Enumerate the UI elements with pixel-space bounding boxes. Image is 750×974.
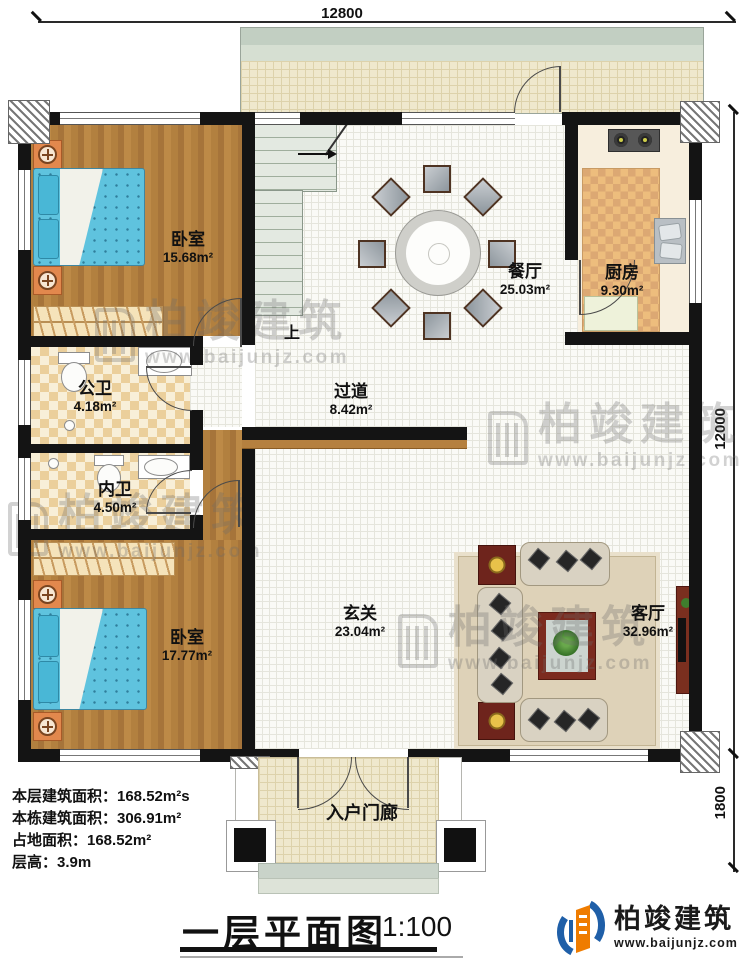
window — [510, 749, 648, 762]
lamp-icon — [489, 557, 506, 574]
room-label-hallway: 过道 8.42m² — [330, 381, 373, 419]
room-label-foyer: 玄关 23.04m² — [335, 603, 385, 641]
wall-segment — [18, 749, 60, 762]
door-leaf — [238, 480, 240, 527]
window — [255, 112, 300, 125]
room-name: 卧室 — [163, 229, 213, 250]
hatched-pad — [8, 100, 50, 144]
kitchen-sink — [654, 218, 686, 264]
pillow — [38, 219, 59, 259]
balcony-floor — [241, 61, 703, 113]
sofa-pillow — [528, 708, 551, 731]
scale-label: 1:100 — [382, 911, 452, 943]
sink-basin — [659, 242, 683, 260]
window — [18, 360, 31, 425]
lamp-icon — [38, 717, 57, 736]
pillow — [38, 175, 59, 215]
room-name: 入户门廊 — [326, 802, 398, 825]
half-wall-wood-cap — [242, 440, 467, 449]
balcony-band — [241, 28, 703, 45]
dimension-line-top — [38, 21, 736, 23]
table-center — [428, 243, 450, 265]
dining-chair — [423, 165, 451, 193]
end-table — [478, 702, 515, 740]
end-table — [478, 545, 516, 585]
nightstand — [33, 140, 62, 169]
wall-segment — [18, 444, 190, 453]
wall-segment — [300, 112, 402, 125]
brand-logo: 柏竣建筑 www.baijunjz.com — [556, 900, 738, 956]
wall-segment — [565, 332, 702, 345]
room-label-porch: 入户门廊 — [326, 802, 398, 825]
info-line: 本栋建筑面积：306.91m² — [12, 808, 190, 830]
dining-chair — [358, 240, 386, 268]
burner-flame-icon — [619, 138, 623, 142]
stove — [608, 129, 660, 152]
wall-segment — [689, 303, 702, 762]
watermark-site: www.baijunjz.com — [538, 450, 742, 472]
door-leaf — [579, 260, 581, 315]
dining-chair — [423, 312, 451, 340]
nightstand — [33, 712, 62, 741]
porch-step — [258, 878, 439, 894]
balcony-band — [241, 45, 703, 61]
bed — [33, 608, 147, 710]
watermark-logo-icon — [488, 411, 528, 465]
room-area: 9.30m² — [601, 283, 644, 300]
info-line: 占地面积：168.52m² — [12, 830, 190, 852]
title-underline — [180, 947, 437, 952]
blanket — [60, 609, 103, 709]
window — [18, 170, 31, 250]
window — [18, 600, 31, 700]
room-name: 内卫 — [94, 479, 137, 500]
dimension-top-value: 12800 — [310, 5, 374, 22]
wall-segment — [565, 112, 578, 260]
room-name: 餐厅 — [500, 261, 550, 282]
floor-drain — [64, 420, 75, 431]
door-leaf — [146, 512, 191, 514]
watermark-logo-icon — [398, 614, 438, 668]
wall-segment — [242, 427, 255, 749]
watermark-text: 柏竣建筑 — [538, 403, 742, 447]
dining-table — [395, 210, 481, 296]
pillow — [38, 661, 59, 703]
room-area: 4.18m² — [74, 399, 117, 416]
room-name: 上 — [284, 324, 300, 344]
room-label-living: 客厅 32.96m² — [623, 603, 673, 641]
room-name: 公卫 — [74, 378, 117, 399]
watermark: 柏竣建筑 www.baijunjz.com — [488, 403, 742, 472]
lamp-icon — [38, 271, 57, 290]
door-leaf — [297, 757, 299, 808]
brand-name: 柏竣建筑 — [614, 906, 738, 933]
wall-segment — [18, 529, 190, 540]
info-line: 层高：3.9m — [12, 852, 190, 874]
watermark-site: www.baijunjz.com — [448, 653, 652, 675]
watermark: 柏竣建筑 www.baijunjz.com — [398, 606, 652, 675]
stairs-up-label: 上 — [284, 324, 300, 344]
room-label-bedroom2: 卧室 17.77m² — [162, 627, 212, 665]
lamp-icon — [488, 713, 505, 730]
door-arc — [193, 480, 239, 528]
room-area: 32.96m² — [623, 624, 673, 641]
room-area: 4.50m² — [94, 500, 137, 517]
door-leaf — [146, 366, 191, 368]
info-line: 本层建筑面积：168.52m²s — [12, 786, 190, 808]
dimension-right-lower-value: 1800 — [712, 786, 729, 819]
sofa-loveseat — [520, 542, 610, 586]
stairs-upper-flight — [255, 125, 336, 191]
window — [60, 112, 200, 125]
wall-segment — [18, 336, 193, 347]
room-label-public-bath: 公卫 4.18m² — [74, 378, 117, 416]
room-area: 8.42m² — [330, 402, 373, 419]
watermark-site: www.baijunjz.com — [58, 541, 262, 563]
nightstand — [33, 266, 62, 295]
sofa-pillow — [556, 550, 579, 573]
bed — [33, 168, 145, 266]
sofa-pillow — [580, 548, 603, 571]
door-leaf — [559, 66, 561, 112]
porch-column — [444, 828, 476, 862]
room-name: 卧室 — [162, 627, 212, 648]
sofa-loveseat — [520, 698, 608, 742]
sink-basin — [658, 223, 682, 242]
room-label-dining: 餐厅 25.03m² — [500, 261, 550, 299]
nightstand — [33, 580, 62, 609]
room-name: 玄关 — [335, 603, 385, 624]
stairs-arrow-head — [328, 149, 337, 159]
stairs-direction-arrow — [298, 153, 328, 155]
wall-segment — [242, 427, 467, 440]
lamp-icon — [38, 585, 57, 604]
sofa-pillow — [528, 548, 551, 571]
title-underline-thin — [180, 956, 463, 958]
floor-drain — [48, 458, 59, 469]
window — [689, 200, 702, 303]
room-area: 25.03m² — [500, 282, 550, 299]
sofa-pillow — [491, 673, 514, 696]
floor-plan-canvas: 12800 12000 1800 — [0, 0, 750, 974]
room-name: 过道 — [330, 381, 373, 402]
lamp-icon — [38, 145, 57, 164]
room-name: 客厅 — [623, 603, 673, 624]
brand-logo-icon — [556, 900, 606, 956]
porch-column — [234, 828, 266, 862]
watermark-logo-icon — [95, 308, 135, 362]
room-area: 17.77m² — [162, 648, 212, 665]
watermark-text: 柏竣建筑 — [448, 606, 652, 650]
window — [60, 749, 200, 762]
door-leaf — [407, 757, 409, 808]
room-area: 15.68m² — [163, 250, 213, 267]
blanket — [60, 169, 103, 265]
window — [402, 112, 515, 125]
hatched-pad — [680, 731, 720, 773]
room-area: 23.04m² — [335, 624, 385, 641]
room-name: 厨房 — [601, 262, 644, 283]
room-label-kitchen: 厨房 9.30m² — [601, 262, 644, 300]
tv — [678, 618, 686, 662]
wall-segment — [18, 425, 31, 458]
area-info-block: 本层建筑面积：168.52m²s 本栋建筑面积：306.91m² 占地面积：16… — [12, 786, 190, 874]
pillow — [38, 615, 59, 657]
door-leaf — [240, 298, 242, 347]
room-label-private-bath: 内卫 4.50m² — [94, 479, 137, 517]
sofa-pillow — [554, 710, 577, 733]
balcony — [240, 27, 704, 114]
brand-site: www.baijunjz.com — [614, 936, 738, 950]
burner-flame-icon — [643, 138, 647, 142]
wall-segment — [190, 410, 203, 470]
window — [18, 458, 31, 520]
sofa-pillow — [578, 708, 601, 731]
dimension-line-right-lower — [733, 757, 735, 872]
room-label-bedroom1: 卧室 15.68m² — [163, 229, 213, 267]
chimney-vent — [680, 101, 720, 143]
wall-segment — [242, 112, 255, 345]
dimension-tick — [31, 11, 42, 22]
porch-column-pad — [436, 820, 486, 872]
